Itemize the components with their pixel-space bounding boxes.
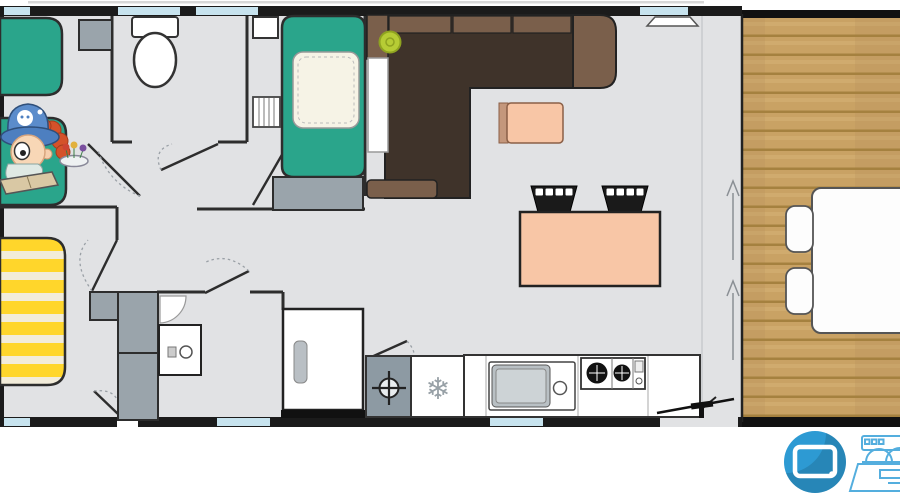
deck-bottom-edge	[742, 417, 900, 427]
dining-chair-1	[531, 186, 577, 212]
sofa-arm-bottom	[367, 180, 437, 198]
nightstand	[253, 17, 278, 38]
pillow	[293, 52, 359, 128]
wc-room	[132, 17, 178, 87]
side-window-panel	[368, 58, 388, 152]
coffee-table	[499, 103, 563, 143]
dining-chair-2	[602, 186, 648, 212]
dishwasher-icon	[850, 436, 900, 491]
snowflake-icon: ❄	[425, 372, 450, 407]
shower-cabinet	[281, 309, 365, 418]
gas-hob	[581, 358, 645, 389]
window-top-4	[640, 7, 688, 15]
sofa-cushion-2	[453, 16, 511, 33]
fridge-freezer: ❄	[411, 356, 465, 417]
toilet-bowl	[134, 33, 176, 87]
kitchen: ❄	[366, 355, 734, 418]
outdoor-chair-1	[786, 206, 813, 252]
cabinet-handle	[294, 341, 307, 383]
washbasin	[159, 325, 201, 375]
small-cabinet	[90, 292, 118, 320]
deck-top-edge	[742, 10, 900, 18]
entrance-opening	[660, 417, 738, 427]
window-bottom-3	[490, 418, 543, 426]
ceiling-vent	[647, 17, 698, 26]
floor-plan-page: ❄	[0, 0, 900, 500]
wardrobe-box	[79, 20, 112, 50]
roofline	[28, 1, 704, 4]
radiator	[253, 97, 280, 127]
outdoor-table	[812, 188, 900, 333]
sofa-cushion-3	[513, 16, 571, 33]
plant-on-sofa	[380, 32, 401, 53]
window-top-1	[0, 7, 30, 15]
dining-table	[520, 212, 660, 286]
water-heater	[366, 356, 411, 417]
outdoor-chair-2	[786, 268, 813, 314]
amenity-icons	[784, 431, 900, 493]
single-bed-top	[0, 18, 62, 95]
sofa-cushion-1	[389, 16, 451, 33]
sofa-arm-right	[573, 15, 616, 88]
terrace	[742, 10, 900, 427]
foot-wardrobe	[273, 177, 363, 210]
floor-plan-canvas: ❄	[0, 0, 900, 500]
window-bottom-1	[0, 418, 30, 426]
wardrobe-column	[118, 292, 158, 420]
window-top-2	[118, 7, 180, 15]
tv-icon	[784, 431, 846, 493]
window-bottom-2	[217, 418, 270, 426]
striped-double-bed	[0, 238, 65, 385]
window-top-3	[196, 7, 258, 15]
sink-unit	[489, 362, 575, 410]
faucet	[554, 382, 567, 395]
